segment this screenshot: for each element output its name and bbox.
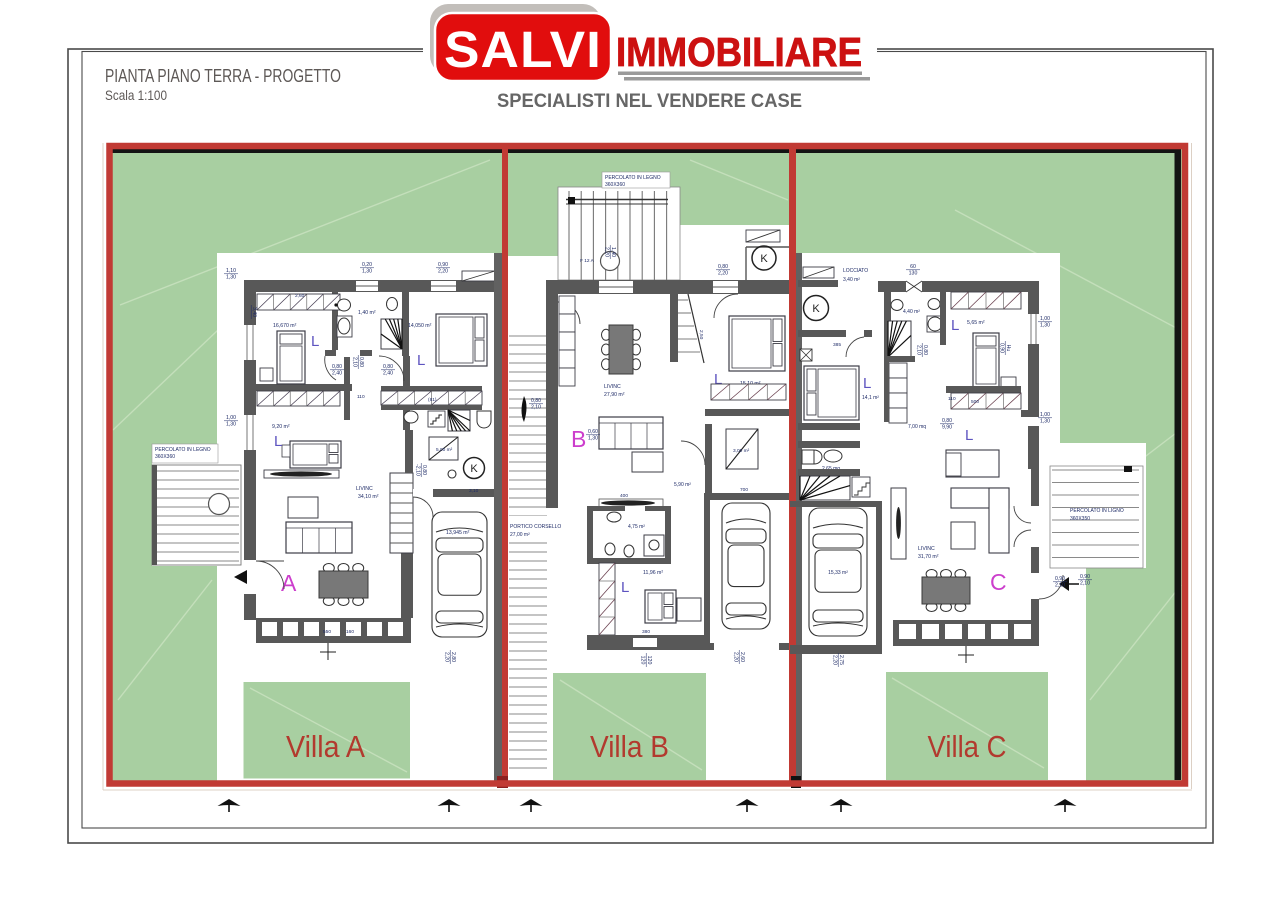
- svg-text:2,40: 2,40: [383, 371, 393, 377]
- svg-text:5,90 m²: 5,90 m²: [674, 482, 691, 488]
- svg-text:LIVINC: LIVINC: [604, 384, 621, 390]
- svg-text:500: 500: [971, 399, 979, 405]
- svg-text:PERCOLATO IN LEGNO: PERCOLATO IN LEGNO: [605, 175, 661, 181]
- svg-text:Scala 1:100: Scala 1:100: [105, 87, 167, 103]
- svg-text:4,75 m²: 4,75 m²: [628, 524, 645, 530]
- svg-text:0,80: 0,80: [531, 398, 541, 404]
- svg-text:1,00: 1,00: [1040, 316, 1050, 322]
- svg-text:360X350: 360X350: [1070, 516, 1090, 522]
- svg-text:0,80: 0,80: [358, 357, 364, 367]
- svg-text:2,60: 2,60: [739, 652, 745, 662]
- svg-text:700: 700: [740, 487, 748, 493]
- svg-text:LOCCIATO: LOCCIATO: [843, 268, 868, 274]
- svg-text:13,945 m²: 13,945 m²: [446, 530, 470, 536]
- svg-text:2,20: 2,20: [604, 247, 610, 257]
- svg-text:2,10: 2,10: [916, 345, 922, 355]
- svg-text:27,90 m²: 27,90 m²: [604, 392, 625, 398]
- svg-text:SALVI: SALVI: [444, 21, 602, 78]
- svg-text:60: 60: [910, 264, 916, 270]
- svg-text:160: 160: [346, 629, 354, 635]
- svg-text:380: 380: [642, 629, 650, 635]
- svg-text:1,30: 1,30: [1040, 419, 1050, 425]
- svg-text:14,1 m²: 14,1 m²: [862, 395, 879, 401]
- svg-text:B: B: [571, 426, 586, 452]
- svg-text:9,20 m²: 9,20 m²: [272, 424, 290, 430]
- svg-text:550: 550: [323, 629, 331, 635]
- svg-text:0,80: 0,80: [942, 418, 952, 424]
- svg-text:SPECIALISTI NEL VENDERE CASE: SPECIALISTI NEL VENDERE CASE: [497, 90, 802, 112]
- svg-text:PERCOLATO IN LEGNO: PERCOLATO IN LEGNO: [155, 447, 211, 453]
- svg-text:LIVINC: LIVINC: [918, 546, 935, 552]
- svg-text:27,00 m²: 27,00 m²: [510, 532, 530, 538]
- svg-text:1,30: 1,30: [226, 275, 236, 281]
- svg-text:PERCOLATO IN LIGNO: PERCOLATO IN LIGNO: [1070, 508, 1124, 514]
- svg-text:K: K: [812, 303, 820, 315]
- svg-text:2,10: 2,10: [352, 357, 358, 367]
- svg-text:5,00 m²: 5,00 m²: [436, 447, 453, 453]
- svg-text:2,10: 2,10: [1080, 581, 1090, 587]
- svg-text:360X360: 360X360: [155, 454, 175, 460]
- svg-text:2,20: 2,20: [733, 652, 739, 662]
- svg-text:0,80: 0,80: [332, 364, 342, 370]
- svg-text:7,00 mq: 7,00 mq: [908, 424, 926, 430]
- svg-text:2,20: 2,20: [444, 652, 450, 662]
- svg-text:1,30: 1,30: [588, 436, 598, 442]
- svg-text:11,96 m²: 11,96 m²: [643, 570, 663, 576]
- svg-text:2,40: 2,40: [332, 371, 342, 377]
- svg-text:0,80: 0,80: [421, 465, 427, 475]
- svg-text:0,90: 0,90: [1080, 574, 1090, 580]
- svg-text:2,75: 2,75: [838, 655, 844, 665]
- svg-text:L: L: [965, 427, 973, 444]
- svg-text:2,10: 2,10: [1055, 583, 1065, 589]
- svg-text:2,80: 2,80: [450, 652, 456, 662]
- svg-text:3,40: 3,40: [251, 307, 257, 317]
- svg-text:3,10: 3,10: [469, 488, 479, 494]
- svg-text:16,670 m²: 16,670 m²: [273, 323, 297, 329]
- svg-text:0,90: 0,90: [1055, 576, 1065, 582]
- svg-text:IMMOBILIARE: IMMOBILIARE: [616, 29, 862, 75]
- svg-text:120: 120: [646, 656, 652, 665]
- svg-text:34,10 m²: 34,10 m²: [358, 494, 379, 500]
- svg-text:3,00 m²: 3,00 m²: [733, 448, 750, 454]
- svg-text:0,20: 0,20: [362, 262, 372, 268]
- svg-text:1,30: 1,30: [226, 422, 236, 428]
- svg-text:110: 110: [948, 396, 956, 402]
- svg-text:1,00: 1,00: [226, 415, 236, 421]
- svg-text:Villa B: Villa B: [590, 729, 669, 764]
- svg-text:PIANTA PIANO TERRA - PROGETTO: PIANTA PIANO TERRA - PROGETTO: [105, 65, 341, 86]
- svg-text:1,40 m²: 1,40 m²: [358, 310, 376, 316]
- svg-text:0,80: 0,80: [383, 364, 393, 370]
- svg-text:0,60: 0,60: [588, 429, 598, 435]
- svg-text:C: C: [990, 569, 1007, 595]
- svg-text:9,90: 9,90: [942, 425, 952, 431]
- svg-text:2,60: 2,60: [295, 293, 305, 299]
- svg-text:L: L: [951, 317, 959, 334]
- svg-text:-2,10: -2,10: [415, 464, 421, 476]
- svg-text:Villa A: Villa A: [286, 729, 365, 764]
- svg-text:K: K: [470, 463, 478, 475]
- svg-text:1,40: 1,40: [610, 247, 616, 257]
- svg-text:L: L: [621, 579, 629, 596]
- svg-text:2,50: 2,50: [698, 330, 704, 340]
- svg-text:1,30: 1,30: [362, 269, 372, 275]
- svg-text:5,65 m²: 5,65 m²: [967, 320, 985, 326]
- svg-text:1,00: 1,00: [1040, 412, 1050, 418]
- svg-text:400: 400: [620, 493, 628, 499]
- svg-text:2,20: 2,20: [438, 269, 448, 275]
- svg-text:L: L: [274, 433, 282, 450]
- svg-text:0,90: 0,90: [999, 343, 1005, 353]
- svg-text:2,20: 2,20: [718, 271, 728, 277]
- svg-text:31,70 m²: 31,70 m²: [918, 554, 939, 560]
- svg-text:2,10: 2,10: [531, 405, 541, 411]
- svg-text:0,80: 0,80: [922, 345, 928, 355]
- svg-text:2,20: 2,20: [832, 655, 838, 665]
- svg-text:385: 385: [833, 342, 841, 348]
- svg-text:0,90: 0,90: [438, 262, 448, 268]
- svg-text:L: L: [311, 333, 319, 350]
- svg-text:PORTICO CORSELLO: PORTICO CORSELLO: [510, 524, 561, 530]
- svg-text:L: L: [417, 352, 425, 369]
- svg-text:1,30: 1,30: [1040, 323, 1050, 329]
- svg-text:L: L: [863, 375, 871, 392]
- svg-text:F 12 A: F 12 A: [580, 258, 595, 264]
- svg-text:1,10: 1,10: [226, 268, 236, 274]
- svg-text:LIVINC: LIVINC: [356, 486, 373, 492]
- svg-text:K: K: [760, 253, 768, 265]
- svg-text:360X360: 360X360: [605, 182, 625, 188]
- svg-text:Hu: Hu: [1005, 345, 1011, 352]
- svg-text:120: 120: [640, 656, 646, 665]
- svg-text:(81): (81): [428, 397, 437, 403]
- svg-text:130: 130: [909, 271, 918, 277]
- svg-text:14,050 m²: 14,050 m²: [408, 323, 432, 329]
- svg-text:4,40 m²: 4,40 m²: [903, 309, 920, 315]
- svg-text:Villa C: Villa C: [928, 729, 1007, 764]
- svg-text:15,33 m²: 15,33 m²: [828, 570, 848, 576]
- svg-text:3,40 m²: 3,40 m²: [843, 277, 860, 283]
- svg-text:110: 110: [357, 394, 365, 400]
- svg-text:0,80: 0,80: [718, 264, 728, 270]
